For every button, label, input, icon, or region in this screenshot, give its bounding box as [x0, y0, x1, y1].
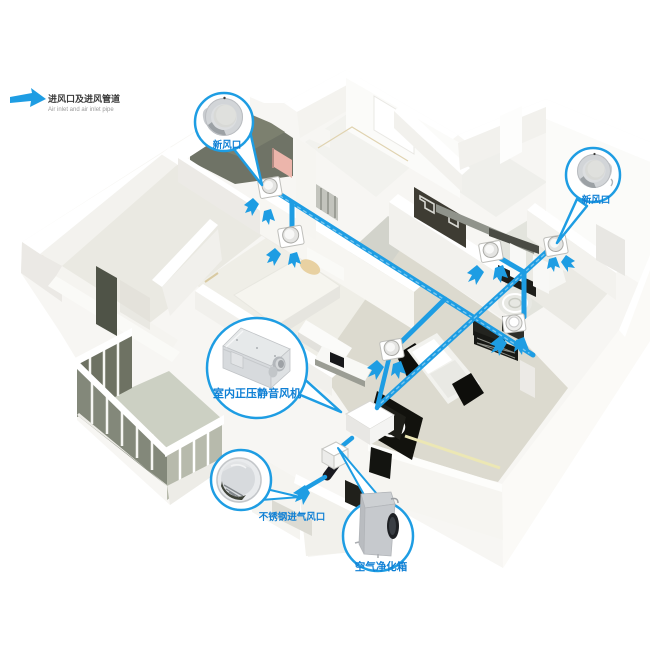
svg-text:空气净化箱: 空气净化箱	[355, 560, 408, 573]
svg-text:不锈钢进气风口: 不锈钢进气风口	[259, 511, 326, 523]
svg-text:新风口: 新风口	[582, 194, 611, 206]
svg-text:进风口及进风管道: 进风口及进风管道	[48, 93, 120, 104]
svg-text:室内正压静音风机: 室内正压静音风机	[213, 386, 301, 400]
svg-text:新风口: 新风口	[213, 139, 242, 151]
svg-text:Air inlet and air inlet pipe: Air inlet and air inlet pipe	[48, 107, 114, 113]
